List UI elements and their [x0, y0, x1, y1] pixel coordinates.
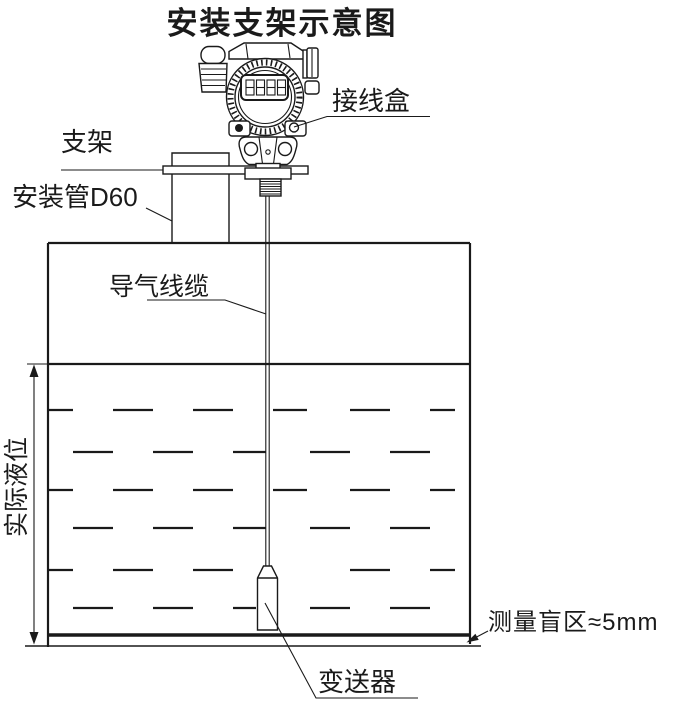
tank	[25, 243, 481, 647]
screw-icon	[235, 124, 243, 132]
liquid-dashes	[48, 410, 455, 608]
threaded-stud	[260, 179, 281, 196]
mounting-pipe-label: 安装管D60	[12, 182, 138, 212]
leader-air-cable	[147, 300, 266, 314]
page-title: 安装支架示意图	[167, 6, 398, 41]
actual-level-label: 实际液位	[3, 437, 31, 537]
air-cable-label: 导气线缆	[109, 273, 209, 301]
air-cable-line	[266, 196, 269, 567]
blind-zone-label: 测量盲区≈5mm	[488, 609, 659, 636]
junction-box-label: 接线盒	[332, 86, 410, 116]
mounting-yoke	[239, 137, 297, 165]
arrow-down-icon	[30, 632, 39, 645]
transmitter-label: 变送器	[318, 667, 396, 697]
screw-icon	[290, 123, 299, 132]
arrow-up-icon	[30, 365, 39, 378]
cable-gland-icon	[199, 47, 227, 93]
lcd-display	[241, 75, 288, 100]
installation-diagram: 安装支架示意图	[0, 0, 700, 708]
leader-mounting-pipe	[146, 208, 172, 221]
top-cap-icon	[229, 43, 313, 59]
bracket-label: 支架	[61, 127, 113, 157]
hex-nut	[245, 168, 291, 179]
leader-junction-box	[294, 117, 430, 128]
side-port-icon	[303, 48, 319, 94]
